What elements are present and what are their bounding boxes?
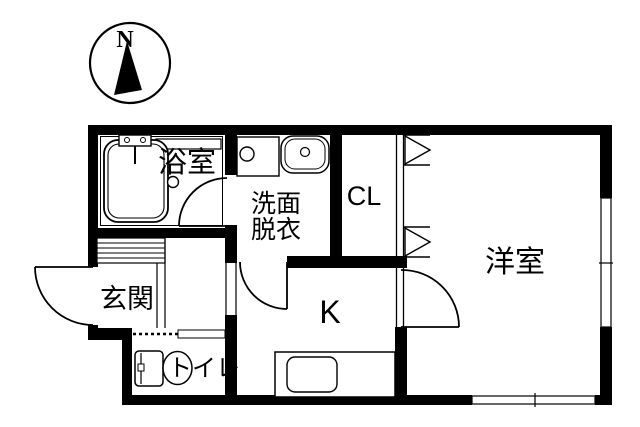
entrance-step-cabinet — [97, 238, 165, 263]
closet-label: CL — [347, 181, 382, 211]
washroom-fixtures — [237, 136, 329, 176]
closet-doors — [397, 135, 431, 327]
western-room-door — [401, 270, 459, 327]
faucet-handle-icon — [125, 138, 130, 143]
wall-segment — [600, 125, 612, 198]
wall-segment — [122, 328, 132, 405]
bottom-window — [472, 396, 595, 404]
entrance-door — [35, 267, 93, 325]
toilet-label: トイレ — [168, 355, 240, 382]
washroom-door — [240, 262, 287, 309]
wall-segment — [330, 135, 342, 268]
door-swing-arc — [240, 262, 287, 309]
wall-segment — [88, 125, 612, 135]
toilet-flush-handle-icon — [138, 364, 144, 371]
wall-segment — [225, 135, 237, 175]
washroom-label-line1: 洗面 — [251, 190, 301, 218]
compass-north-label: N — [116, 27, 134, 53]
door-swing-arc — [35, 267, 93, 325]
folding-door-icon — [405, 228, 430, 256]
wall-segment — [88, 228, 237, 238]
floor-plan-page: N — [0, 0, 640, 427]
floor-plan-drawing: N — [0, 0, 640, 427]
washer-drain-icon — [240, 147, 254, 161]
kitchen-sink — [287, 357, 337, 392]
door-swing-arc — [179, 178, 227, 226]
kitchen-fixtures — [275, 352, 395, 397]
toilet-doorway — [178, 330, 225, 338]
entrance-area — [97, 238, 236, 328]
bath-faucet-icon — [119, 135, 151, 146]
bathroom-door — [179, 178, 227, 226]
faucet-handle-icon — [141, 138, 146, 143]
windows — [472, 198, 613, 407]
washroom-label-line2: 脱衣 — [251, 216, 301, 244]
wall-segment — [395, 327, 407, 397]
compass: N — [90, 23, 170, 103]
bathroom-label: 浴室 — [158, 146, 216, 179]
folding-door-icon — [405, 136, 430, 164]
entrance-label: 玄関 — [100, 284, 154, 314]
kitchen-label: K — [319, 294, 340, 330]
wall-segment — [287, 256, 407, 268]
door-swing-arc — [401, 270, 459, 327]
wall-segment — [600, 327, 612, 405]
wall-segment — [225, 225, 237, 263]
western-room-label: 洋室 — [485, 246, 545, 279]
